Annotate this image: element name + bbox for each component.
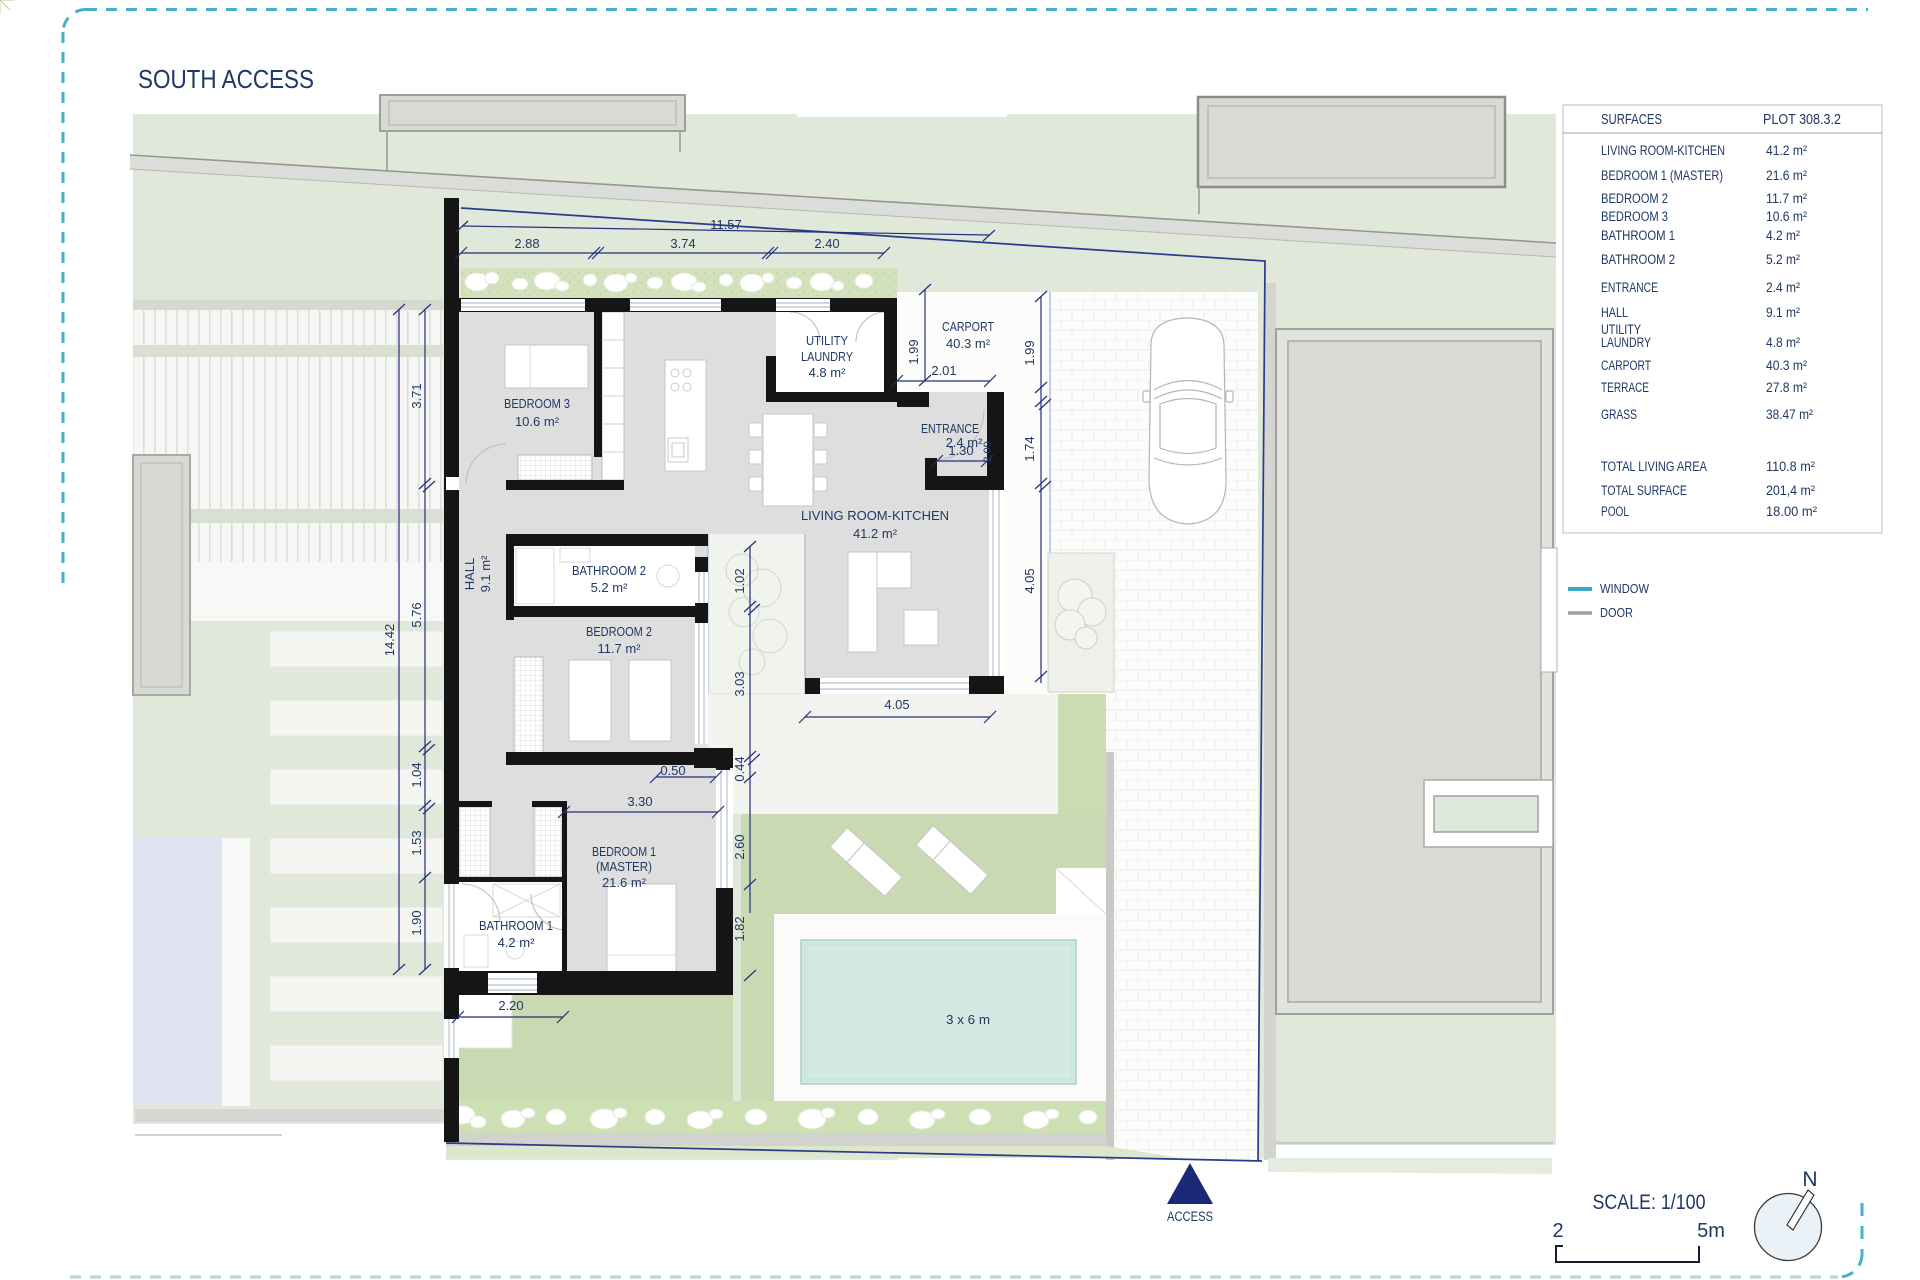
svg-text:5.76: 5.76 <box>409 602 424 627</box>
svg-text:LIVING ROOM-KITCHEN: LIVING ROOM-KITCHEN <box>801 508 949 523</box>
svg-text:18.00 m²: 18.00 m² <box>1766 504 1817 519</box>
svg-text:TOTAL SURFACE: TOTAL SURFACE <box>1601 483 1687 498</box>
svg-text:2.20: 2.20 <box>498 998 523 1013</box>
svg-text:4.2 m²: 4.2 m² <box>498 935 536 950</box>
svg-text:201,4 m²: 201,4 m² <box>1766 483 1815 498</box>
svg-text:LAUNDRY: LAUNDRY <box>1601 335 1651 350</box>
svg-text:TERRACE: TERRACE <box>1601 380 1649 395</box>
svg-text:2.00: 2.00 <box>982 441 994 462</box>
svg-text:TOTAL LIVING AREA: TOTAL LIVING AREA <box>1601 459 1707 474</box>
svg-text:3.30: 3.30 <box>627 794 652 809</box>
svg-text:WINDOW: WINDOW <box>1600 582 1649 596</box>
svg-text:9.1 m²: 9.1 m² <box>478 555 493 593</box>
svg-text:3 x 6 m: 3 x 6 m <box>946 1012 990 1027</box>
svg-text:ENTRANCE: ENTRANCE <box>921 421 979 436</box>
svg-text:DOOR: DOOR <box>1600 606 1633 620</box>
svg-text:4.8 m²: 4.8 m² <box>809 365 847 380</box>
svg-text:BEDROOM 1: BEDROOM 1 <box>592 844 656 859</box>
svg-text:0.44: 0.44 <box>732 756 747 781</box>
svg-text:2: 2 <box>1552 1220 1563 1242</box>
svg-text:4.05: 4.05 <box>1022 568 1037 593</box>
svg-text:5.2 m²: 5.2 m² <box>591 580 629 595</box>
svg-text:1.99: 1.99 <box>906 339 921 364</box>
svg-text:HALL: HALL <box>1601 305 1628 320</box>
svg-text:1.82: 1.82 <box>732 916 747 941</box>
svg-text:GRASS: GRASS <box>1601 407 1637 422</box>
svg-text:PLOT 308.3.2: PLOT 308.3.2 <box>1763 112 1841 128</box>
svg-text:11.7 m²: 11.7 m² <box>1766 191 1807 206</box>
svg-text:5m: 5m <box>1697 1220 1725 1242</box>
svg-text:1.90: 1.90 <box>409 910 424 935</box>
svg-text:3.74: 3.74 <box>670 236 695 251</box>
svg-text:27.8 m²: 27.8 m² <box>1766 380 1807 395</box>
svg-text:40.3 m²: 40.3 m² <box>946 336 991 351</box>
svg-text:BEDROOM 1 (MASTER): BEDROOM 1 (MASTER) <box>1601 168 1723 183</box>
svg-text:41.2 m²: 41.2 m² <box>1766 143 1807 158</box>
svg-text:UTILITY: UTILITY <box>806 333 848 348</box>
svg-text:BEDROOM 3: BEDROOM 3 <box>1601 209 1668 224</box>
svg-text:14.42: 14.42 <box>382 624 397 657</box>
svg-text:4.05: 4.05 <box>884 697 909 712</box>
svg-text:SCALE: 1/100: SCALE: 1/100 <box>1593 1191 1706 1214</box>
svg-text:2.88: 2.88 <box>514 236 539 251</box>
svg-text:BATHROOM 1: BATHROOM 1 <box>1601 228 1675 243</box>
svg-text:2.4 m²: 2.4 m² <box>946 435 984 450</box>
svg-text:41.2 m²: 41.2 m² <box>853 526 898 541</box>
svg-text:40.3 m²: 40.3 m² <box>1766 358 1807 373</box>
svg-text:9.1 m²: 9.1 m² <box>1766 305 1800 320</box>
svg-text:21.6 m²: 21.6 m² <box>1766 168 1807 183</box>
svg-text:ACCESS: ACCESS <box>1167 1209 1213 1224</box>
svg-text:4.2 m²: 4.2 m² <box>1766 228 1800 243</box>
svg-text:POOL: POOL <box>1601 504 1629 519</box>
svg-text:11.7 m²: 11.7 m² <box>597 641 641 656</box>
svg-text:BATHROOM 1: BATHROOM 1 <box>479 918 553 933</box>
svg-text:2.40: 2.40 <box>814 236 839 251</box>
svg-text:BATHROOM 2: BATHROOM 2 <box>572 563 646 578</box>
svg-text:10.6 m²: 10.6 m² <box>515 414 560 429</box>
svg-text:LAUNDRY: LAUNDRY <box>801 349 853 364</box>
svg-text:1.53: 1.53 <box>409 830 424 855</box>
svg-text:SOUTH ACCESS: SOUTH ACCESS <box>138 64 314 94</box>
svg-text:5.2 m²: 5.2 m² <box>1766 252 1800 267</box>
svg-text:BATHROOM 2: BATHROOM 2 <box>1601 252 1675 267</box>
svg-text:38.47 m²: 38.47 m² <box>1766 407 1813 422</box>
svg-text:CARPORT: CARPORT <box>1601 358 1651 373</box>
svg-text:1.02: 1.02 <box>732 568 747 593</box>
svg-text:CARPORT: CARPORT <box>942 319 994 334</box>
svg-text:(MASTER): (MASTER) <box>596 859 652 874</box>
svg-text:2.01: 2.01 <box>931 363 956 378</box>
svg-text:10.6 m²: 10.6 m² <box>1766 209 1807 224</box>
svg-text:2.4 m²: 2.4 m² <box>1766 280 1800 295</box>
svg-text:ENTRANCE: ENTRANCE <box>1601 280 1658 295</box>
svg-text:3.03: 3.03 <box>732 671 747 696</box>
svg-text:BEDROOM 2: BEDROOM 2 <box>1601 191 1668 206</box>
svg-text:21.6 m²: 21.6 m² <box>602 875 647 890</box>
svg-text:11.57: 11.57 <box>710 217 742 232</box>
svg-text:110.8 m²: 110.8 m² <box>1766 459 1815 474</box>
svg-text:BEDROOM 2: BEDROOM 2 <box>586 624 652 639</box>
svg-text:0.50: 0.50 <box>660 763 685 778</box>
svg-text:2.60: 2.60 <box>732 834 747 859</box>
svg-text:BEDROOM 3: BEDROOM 3 <box>504 396 570 411</box>
svg-text:4.8 m²: 4.8 m² <box>1766 335 1800 350</box>
svg-text:1.99: 1.99 <box>1022 340 1037 365</box>
svg-text:HALL: HALL <box>462 558 477 591</box>
svg-text:N: N <box>1802 1168 1817 1191</box>
svg-text:LIVING ROOM-KITCHEN: LIVING ROOM-KITCHEN <box>1601 143 1725 158</box>
svg-text:1.74: 1.74 <box>1022 436 1037 461</box>
svg-text:SURFACES: SURFACES <box>1601 112 1662 128</box>
svg-text:1.04: 1.04 <box>409 762 424 787</box>
svg-text:3.71: 3.71 <box>409 383 424 408</box>
